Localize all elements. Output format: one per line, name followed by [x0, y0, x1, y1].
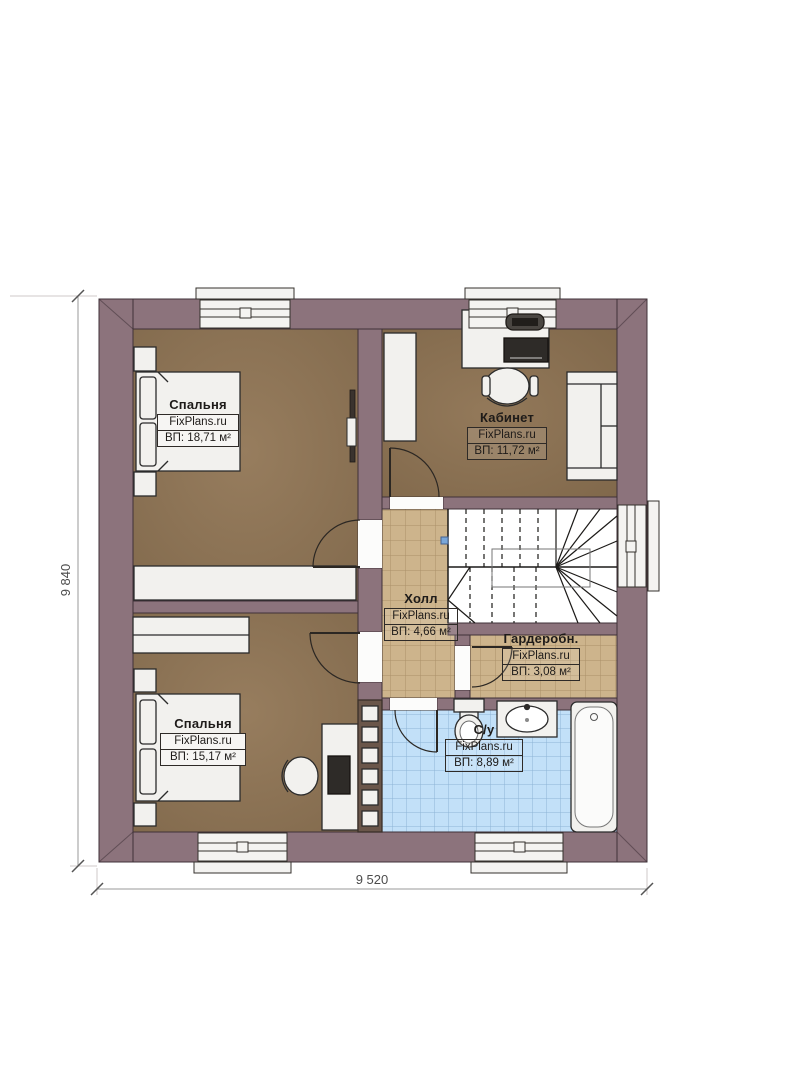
wall-between-bedrooms — [133, 601, 358, 613]
closet-bedroom-1 — [134, 566, 356, 600]
closet-office — [384, 333, 416, 441]
room-name: С/у — [445, 722, 523, 737]
nightstand — [134, 669, 156, 692]
window-bottom-left — [194, 833, 291, 873]
room-name: Холл — [384, 591, 458, 606]
room-info-box: FixPlans.ru ВП: 18,71 м² — [157, 414, 239, 447]
room-label-office: Кабинет FixPlans.ru ВП: 11,72 м² — [467, 410, 547, 460]
room-name: Кабинет — [467, 410, 547, 425]
room-info-box: FixPlans.ru ВП: 11,72 м² — [467, 427, 547, 460]
room-label-hall: Холл FixPlans.ru ВП: 4,66 м² — [384, 591, 458, 641]
wall-office-bottom — [382, 497, 390, 509]
room-area: ВП: 8,89 м² — [446, 755, 522, 771]
room-brand: FixPlans.ru — [385, 609, 457, 624]
wall-exterior-bottom — [99, 832, 647, 862]
window-top-left — [196, 288, 294, 328]
floor-plan-drawing — [0, 0, 792, 1080]
room-name: Спальня — [157, 397, 239, 412]
room-info-box: FixPlans.ru ВП: 3,08 м² — [502, 648, 580, 681]
room-info-box: FixPlans.ru ВП: 15,17 м² — [160, 733, 246, 766]
office-sofa — [567, 372, 617, 480]
wall-wardrobe-left — [455, 690, 470, 698]
wall-office-bottom — [443, 497, 617, 509]
dimension-height-label: 9 840 — [58, 535, 74, 625]
floor-plan-canvas: Спальня FixPlans.ru ВП: 18,71 м² Кабинет… — [0, 0, 792, 1080]
wardrobe-bedroom-2 — [133, 617, 249, 653]
room-area: ВП: 3,08 м² — [503, 664, 579, 680]
room-brand: FixPlans.ru — [503, 649, 579, 664]
bathtub — [571, 702, 617, 832]
nightstand — [134, 803, 156, 826]
window-right — [618, 501, 659, 591]
pillow — [140, 377, 156, 419]
room-label-bedroom-1: Спальня FixPlans.ru ВП: 18,71 м² — [157, 397, 239, 447]
room-brand: FixPlans.ru — [161, 734, 245, 749]
room-info-box: FixPlans.ru ВП: 8,89 м² — [445, 739, 523, 772]
room-brand: FixPlans.ru — [446, 740, 522, 755]
room-area: ВП: 11,72 м² — [468, 443, 546, 459]
office-printer — [506, 314, 544, 330]
wall-interior — [358, 329, 382, 520]
wall-exterior-left — [99, 299, 133, 862]
marker-dot — [441, 537, 448, 544]
wall-interior — [358, 568, 382, 632]
office-monitor — [504, 338, 548, 362]
room-area: ВП: 4,66 м² — [385, 624, 457, 640]
room-brand: FixPlans.ru — [158, 415, 238, 430]
room-label-bathroom: С/у FixPlans.ru ВП: 8,89 м² — [445, 722, 523, 772]
room-area: ВП: 18,71 м² — [158, 430, 238, 446]
pillow — [140, 749, 156, 794]
nightstand — [134, 472, 156, 496]
shelf-unit — [358, 700, 382, 832]
room-area: ВП: 15,17 м² — [161, 749, 245, 765]
dimension-width-label: 9 520 — [332, 872, 412, 888]
room-label-bedroom-2: Спальня FixPlans.ru ВП: 15,17 м² — [160, 716, 246, 766]
window-bottom-right — [471, 833, 567, 873]
floor-staircase — [448, 509, 617, 623]
room-label-wardrobe: Гардеробн. FixPlans.ru ВП: 3,08 м² — [502, 631, 580, 681]
wall-bathroom-top — [382, 698, 390, 710]
nightstand — [134, 347, 156, 371]
room-name: Гардеробн. — [502, 631, 580, 646]
room-name: Спальня — [160, 716, 246, 731]
pillow — [140, 423, 156, 466]
wall-exterior-top — [99, 299, 647, 329]
pillow — [140, 700, 156, 744]
room-brand: FixPlans.ru — [468, 428, 546, 443]
room-info-box: FixPlans.ru ВП: 4,66 м² — [384, 608, 458, 641]
